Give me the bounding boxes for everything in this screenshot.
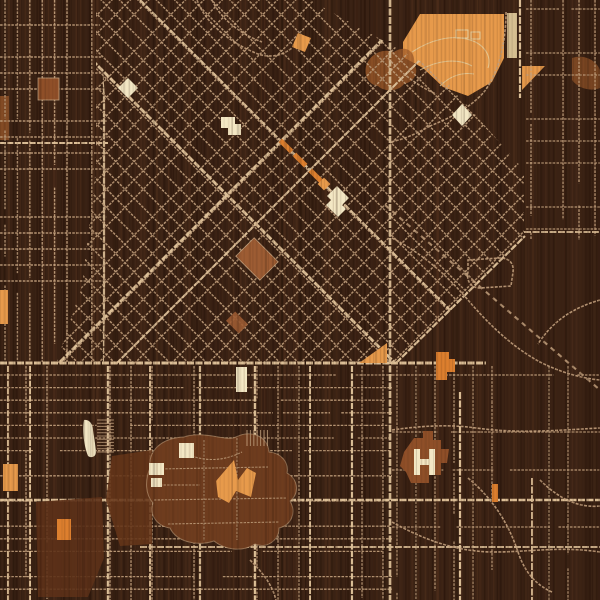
campus-area-south (36, 497, 104, 597)
map-poster (0, 0, 600, 600)
map-canvas (0, 0, 600, 600)
